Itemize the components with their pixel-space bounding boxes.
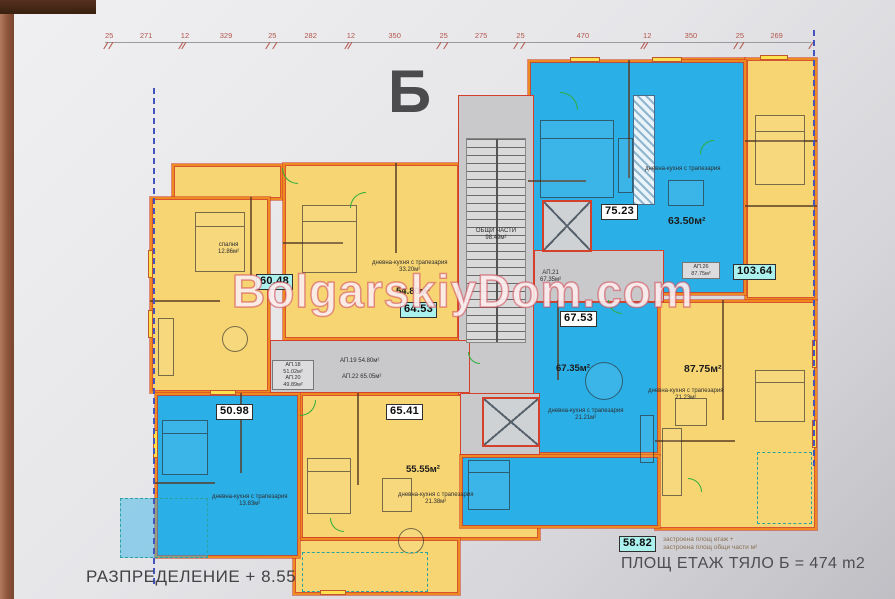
apartment-60-48-wing: [172, 164, 283, 200]
room-label: дневна-кухня с трапезария 21.38м²: [398, 492, 473, 506]
armchair: [398, 528, 424, 554]
wall: [722, 300, 724, 420]
wall: [155, 482, 215, 484]
dimension-value: 271: [111, 30, 180, 42]
apartment-tag-65-41: 65.41: [386, 404, 423, 420]
info-line: 51.02м²: [283, 369, 302, 375]
window: [210, 390, 236, 395]
dimension-value: 269: [742, 30, 811, 42]
sofa: [640, 415, 654, 463]
area-value-87-75: 87.75м²: [684, 363, 722, 375]
sofa: [158, 318, 174, 376]
area-value-55-55: 55.55м²: [406, 464, 440, 475]
area-value-63-50: 63.50м²: [668, 215, 706, 227]
dimension-value: 470: [523, 30, 643, 42]
floorplan-page: 2527112329252821235025275254701235025269…: [0, 0, 895, 599]
room-label: дневна-кухня с трапезария: [645, 166, 720, 173]
service-shaft: [482, 397, 540, 447]
common-area-label: ОБЩИ ЧАСТИ 98.49м²: [462, 228, 530, 242]
balcony-50-98: [120, 498, 208, 558]
room-area: 12.86м²: [218, 249, 239, 255]
dimension-value: 350: [646, 30, 736, 42]
left-border-strip: [0, 0, 14, 599]
wall: [357, 393, 359, 485]
table: [222, 326, 248, 352]
room-area: 21.38м²: [425, 499, 446, 505]
room-label: дневна-кухня с трапезария 21.21м²: [548, 408, 623, 422]
wall: [150, 300, 220, 302]
info-line: АП.18: [285, 362, 300, 368]
bed: [307, 458, 351, 514]
room-area: 13.83м²: [239, 501, 260, 507]
duct-hatch: [633, 95, 655, 205]
apartment-tag-103-64: 103.64: [733, 264, 776, 280]
window: [320, 590, 346, 595]
window: [652, 57, 682, 62]
room-name: спалня: [219, 242, 239, 248]
room-name: дневна-кухня с трапезария: [548, 408, 623, 414]
axis-line-left: [153, 88, 155, 584]
corridor-label-ap19: АП.19 54.80м²: [340, 358, 379, 365]
legend-description: застроена площ етаж + застроена площ общ…: [663, 536, 757, 552]
bed: [755, 115, 805, 185]
table: [675, 398, 707, 426]
info-box-left: АП.18 51.02м² АП.20 49.89м²: [272, 360, 314, 390]
room-name: дневна-кухня с трапезария: [398, 492, 473, 498]
dimension-value: 350: [350, 30, 440, 42]
corridor-label-ap22: АП.22 65.05м²: [342, 374, 381, 381]
watermark: BolgarskiyDom.com: [232, 264, 694, 318]
room-name: дневна-кухня с трапезария: [645, 166, 720, 172]
apartment-tag-75-23: 75.23: [601, 204, 638, 220]
dining-table: [585, 362, 623, 400]
apartment-tag-50-98: 50.98: [216, 404, 253, 420]
common-area-value: 98.49м²: [485, 235, 506, 241]
page-title: РАЗПРЕДЕЛЕНИЕ + 8.55: [86, 567, 296, 587]
block-letter: Б: [388, 62, 431, 122]
bed: [755, 370, 805, 422]
wall: [745, 205, 817, 207]
room-name: дневна-кухня с трапезария: [648, 388, 723, 394]
dining-table: [668, 180, 704, 206]
dimension-value: 282: [275, 30, 347, 42]
terrace-65-41: [302, 552, 428, 592]
terrace-87-75: [757, 452, 812, 524]
sofa: [618, 138, 633, 193]
room-label: спалня 12.86м²: [218, 242, 239, 256]
info-line: 87.75м²: [691, 271, 710, 277]
top-border-strip: [0, 0, 96, 14]
total-area-text: ПЛОЩ ЕТАЖ ТЯЛО Б = 474 m2: [621, 555, 865, 573]
info-line: АП.20: [285, 375, 300, 381]
room-label: дневна-кухня с трапезария 13.83м²: [212, 494, 287, 508]
window: [570, 57, 600, 62]
common-area-name: ОБЩИ ЧАСТИ: [476, 228, 516, 234]
legend-line-2: застроена площ общи части м²: [663, 544, 757, 551]
bed: [162, 420, 208, 475]
dimension-row: 2527112329252821235025275254701235025269: [105, 30, 811, 43]
bed: [468, 460, 510, 510]
window: [760, 55, 788, 60]
bed: [302, 205, 357, 273]
legend-line-1: застроена площ етаж +: [663, 536, 734, 543]
dimension-value: 275: [446, 30, 516, 42]
sofa: [662, 428, 682, 496]
wall: [395, 163, 397, 253]
room-label: дневна-кухня с трапезария 21.23м²: [648, 388, 723, 402]
room-area: 21.21м²: [575, 415, 596, 421]
room-name: дневна-кухня с трапезария: [212, 494, 287, 500]
bed: [540, 120, 614, 198]
room-area: 21.23м²: [675, 395, 696, 401]
dimension-value: 329: [184, 30, 268, 42]
legend-sample-tag: 58.82: [619, 536, 656, 552]
info-line: АП.26: [693, 264, 708, 270]
elevator-shaft: [542, 200, 592, 252]
area-value-67-35: 67.35м²: [556, 363, 590, 374]
info-line: 49.89м²: [283, 382, 302, 388]
axis-line-right: [813, 30, 815, 466]
